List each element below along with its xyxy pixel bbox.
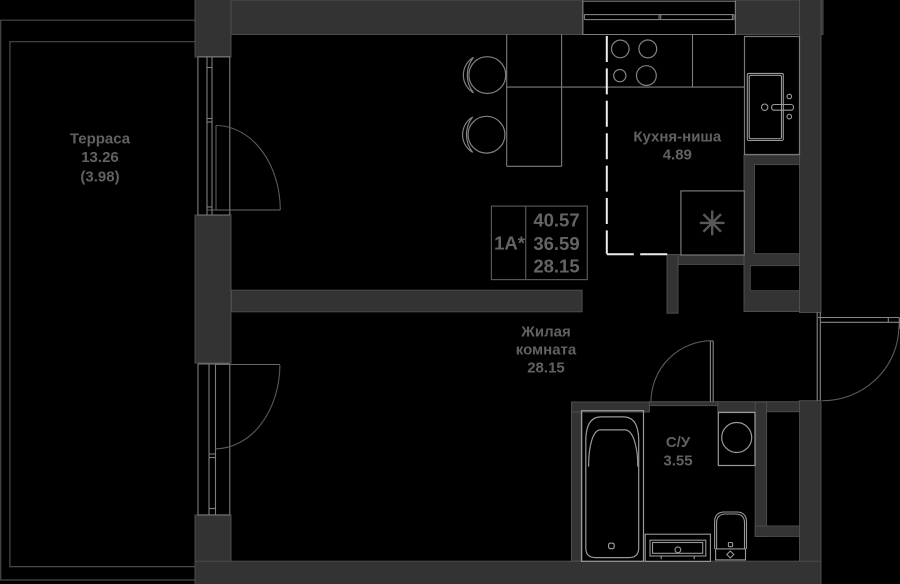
svg-text:комната: комната <box>516 342 577 359</box>
svg-text:С/У: С/У <box>666 434 691 451</box>
svg-text:(3.98): (3.98) <box>80 169 119 186</box>
svg-text:28.15: 28.15 <box>533 256 579 277</box>
svg-text:4.89: 4.89 <box>663 147 692 164</box>
svg-text:3.55: 3.55 <box>663 453 692 470</box>
svg-text:Терраса: Терраса <box>70 131 131 148</box>
svg-text:13.26: 13.26 <box>81 149 119 166</box>
svg-text:36.59: 36.59 <box>533 233 579 254</box>
svg-text:Жилая: Жилая <box>520 323 570 340</box>
svg-text:28.15: 28.15 <box>527 359 565 376</box>
svg-text:40.57: 40.57 <box>533 210 579 231</box>
svg-text:1А*: 1А* <box>494 233 526 254</box>
svg-text:Кухня-ниша: Кухня-ниша <box>633 129 722 146</box>
